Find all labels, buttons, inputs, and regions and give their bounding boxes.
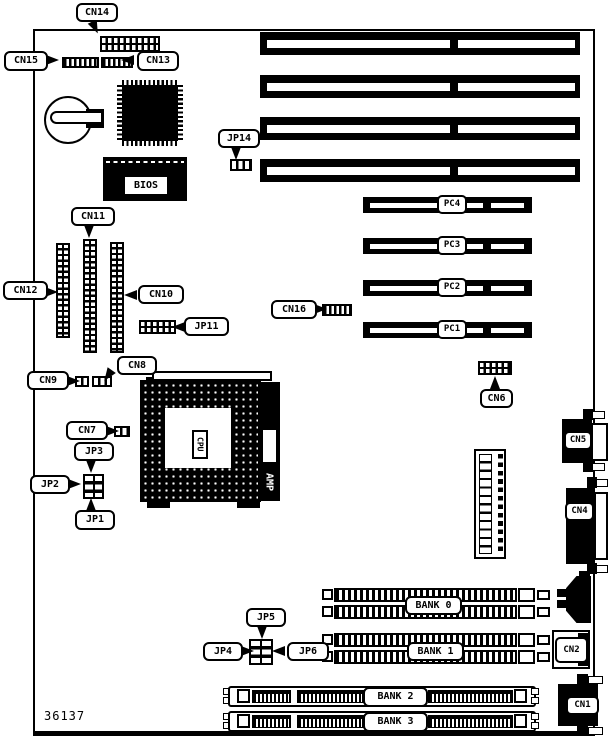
pci-slot-label-pc4: PC4 xyxy=(437,195,467,214)
bank2-end-clip xyxy=(514,689,527,703)
callout-cn10: CN10 xyxy=(138,285,184,304)
bank3-end-clip xyxy=(514,714,527,728)
bank1-side-tab xyxy=(537,652,550,662)
isa-slot-contact-segment xyxy=(267,83,450,91)
pointer-jp6 xyxy=(272,646,285,656)
chip-pins-bottom xyxy=(122,141,178,146)
pointer-cn11 xyxy=(84,225,94,238)
cn2-label: CN2 xyxy=(555,637,588,663)
bank3-side-tab xyxy=(531,722,539,729)
bank3-end-clip xyxy=(237,714,250,728)
callout-cn7: CN7 xyxy=(66,421,108,440)
callout-cn4: CN4 xyxy=(565,502,594,521)
isa-slot-contact-segment xyxy=(267,125,450,133)
callout-cn8: CN8 xyxy=(117,356,157,375)
pointer-cn10 xyxy=(124,290,137,300)
bank2-contact-strip xyxy=(252,690,291,703)
callout-jp3: JP3 xyxy=(74,442,114,461)
cn1-label: CN1 xyxy=(566,696,599,715)
pointer-cn6 xyxy=(490,376,500,389)
callout-jp11: JP11 xyxy=(184,317,229,336)
bank2-contact-strip xyxy=(297,690,364,703)
bank3-contact-strip xyxy=(428,715,513,728)
callout-cn9: CN9 xyxy=(27,371,69,390)
cn4-screw-tab xyxy=(596,479,608,487)
bank3-label: BANK 3 xyxy=(363,712,428,732)
cpu-lever-slot xyxy=(263,430,276,462)
callout-jp1: JP1 xyxy=(75,510,115,530)
callout-cn16: CN16 xyxy=(271,300,317,319)
pci-slot-key xyxy=(483,326,491,335)
callout-cn5: CN5 xyxy=(564,431,592,450)
bank2-end-clip xyxy=(237,689,250,703)
callout-cn13: CN13 xyxy=(137,51,179,71)
pci-slot-key xyxy=(483,201,491,210)
bank1-side-tab xyxy=(537,635,550,645)
connector-cn12-header xyxy=(56,243,70,338)
cn1-screw-tab xyxy=(588,727,603,735)
cpu-socket: CPU xyxy=(140,380,261,502)
bank3-contact-strip xyxy=(252,715,291,728)
callout-jp4: JP4 xyxy=(203,642,243,661)
cn4-port-shell xyxy=(594,492,608,560)
isa-slot-contact-segment xyxy=(458,40,575,48)
isa-slot-contact-segment xyxy=(458,83,575,91)
connector-cn10-header xyxy=(110,242,124,353)
power-connector xyxy=(474,449,506,559)
cpu-socket-foot xyxy=(237,501,260,508)
cn1-screw-tab xyxy=(588,676,603,684)
pci-slot-key xyxy=(483,284,491,293)
isa-slot-3 xyxy=(260,117,580,140)
pointer-cn13 xyxy=(121,55,134,65)
cn4-port-body xyxy=(566,488,595,564)
cn5-port-shell xyxy=(591,423,608,461)
cn5-screw-tab xyxy=(592,463,605,471)
bank1-latch xyxy=(518,650,535,664)
pointer-jp3 xyxy=(86,460,96,473)
connector-cn11-header xyxy=(83,239,97,353)
pointer-jp14 xyxy=(231,147,241,160)
cn5-screw-tab xyxy=(592,411,605,419)
chipset-chip xyxy=(117,80,183,146)
power-connector-holes xyxy=(479,454,492,554)
jumper-jp11-pins xyxy=(139,320,176,334)
isa-slot-contact-segment xyxy=(458,125,575,133)
pci-slot-label-pc3: PC3 xyxy=(437,236,467,255)
isa-slot-contact-segment xyxy=(267,167,450,175)
bank3-contact-strip xyxy=(297,715,364,728)
part-number: 36137 xyxy=(44,709,85,723)
chip-pins-right xyxy=(178,85,183,141)
bank2-side-tab xyxy=(531,697,539,704)
pci-slot-pc1: PC1 xyxy=(363,322,532,338)
callout-jp6: JP6 xyxy=(287,642,329,661)
connector-cn14-header xyxy=(100,36,160,52)
battery-clip xyxy=(50,111,103,124)
bank3-side-tab xyxy=(531,713,539,720)
bank0-latch xyxy=(518,605,535,619)
cpu-socket-foot xyxy=(147,501,170,508)
isa-slot-contact-segment xyxy=(458,167,575,175)
bank2-label: BANK 2 xyxy=(363,687,428,707)
cpu-label: CPU xyxy=(192,430,208,459)
bios-chip-notch-line xyxy=(106,161,184,163)
isa-slot-1 xyxy=(260,32,580,55)
callout-jp5: JP5 xyxy=(246,608,286,627)
connector-cn6-header xyxy=(478,361,512,375)
bank0-side-tab xyxy=(537,590,550,600)
bank0-latch xyxy=(518,588,535,602)
bank0-end-clip xyxy=(322,589,333,600)
callout-cn12: CN12 xyxy=(3,281,48,300)
pci-slot-label-pc2: PC2 xyxy=(437,278,467,297)
bank1-label: BANK 1 xyxy=(407,642,464,661)
pci-slot-label-pc1: PC1 xyxy=(437,320,467,339)
jumper-block-jp1-jp2-jp3 xyxy=(83,474,104,499)
callout-cn15: CN15 xyxy=(4,51,48,71)
pci-slot-pc3: PC3 xyxy=(363,238,532,254)
bios-label: BIOS xyxy=(125,177,167,194)
bank2-side-tab xyxy=(531,688,539,695)
callout-cn11: CN11 xyxy=(71,207,115,226)
cpu-socket-lever-bar: AMP xyxy=(258,382,280,501)
connector-cn15-header xyxy=(62,57,99,68)
pci-slot-pc2: PC2 xyxy=(363,280,532,296)
bank2-contact-strip xyxy=(428,690,513,703)
bank0-end-clip xyxy=(322,606,333,617)
isa-slot-contact-segment xyxy=(267,40,450,48)
callout-jp14: JP14 xyxy=(218,129,260,148)
bank0-side-tab xyxy=(537,607,550,617)
bios-chip: BIOS xyxy=(103,157,187,201)
callout-cn6: CN6 xyxy=(480,389,513,408)
callout-cn14: CN14 xyxy=(76,3,118,22)
pci-slot-key xyxy=(483,242,491,251)
amp-brand-label: AMP xyxy=(262,464,276,500)
jumper-jp14-pins xyxy=(230,159,252,171)
isa-slot-4 xyxy=(260,159,580,182)
bank1-latch xyxy=(518,633,535,647)
bank0-label: BANK 0 xyxy=(405,596,462,615)
motherboard-diagram: PC4 PC3 PC2 PC1 BIOS xyxy=(0,0,610,743)
cn1-screw-post xyxy=(577,725,588,736)
pointer-jp5 xyxy=(257,626,267,639)
chip-body xyxy=(122,85,178,141)
isa-slot-2 xyxy=(260,75,580,98)
din-connector-tab xyxy=(557,589,566,597)
din-connector-tab xyxy=(557,600,566,608)
callout-jp2: JP2 xyxy=(30,475,70,494)
cn4-screw-tab xyxy=(596,565,608,573)
pci-slot-pc4: PC4 xyxy=(363,197,532,213)
power-connector-contacts xyxy=(498,454,503,554)
